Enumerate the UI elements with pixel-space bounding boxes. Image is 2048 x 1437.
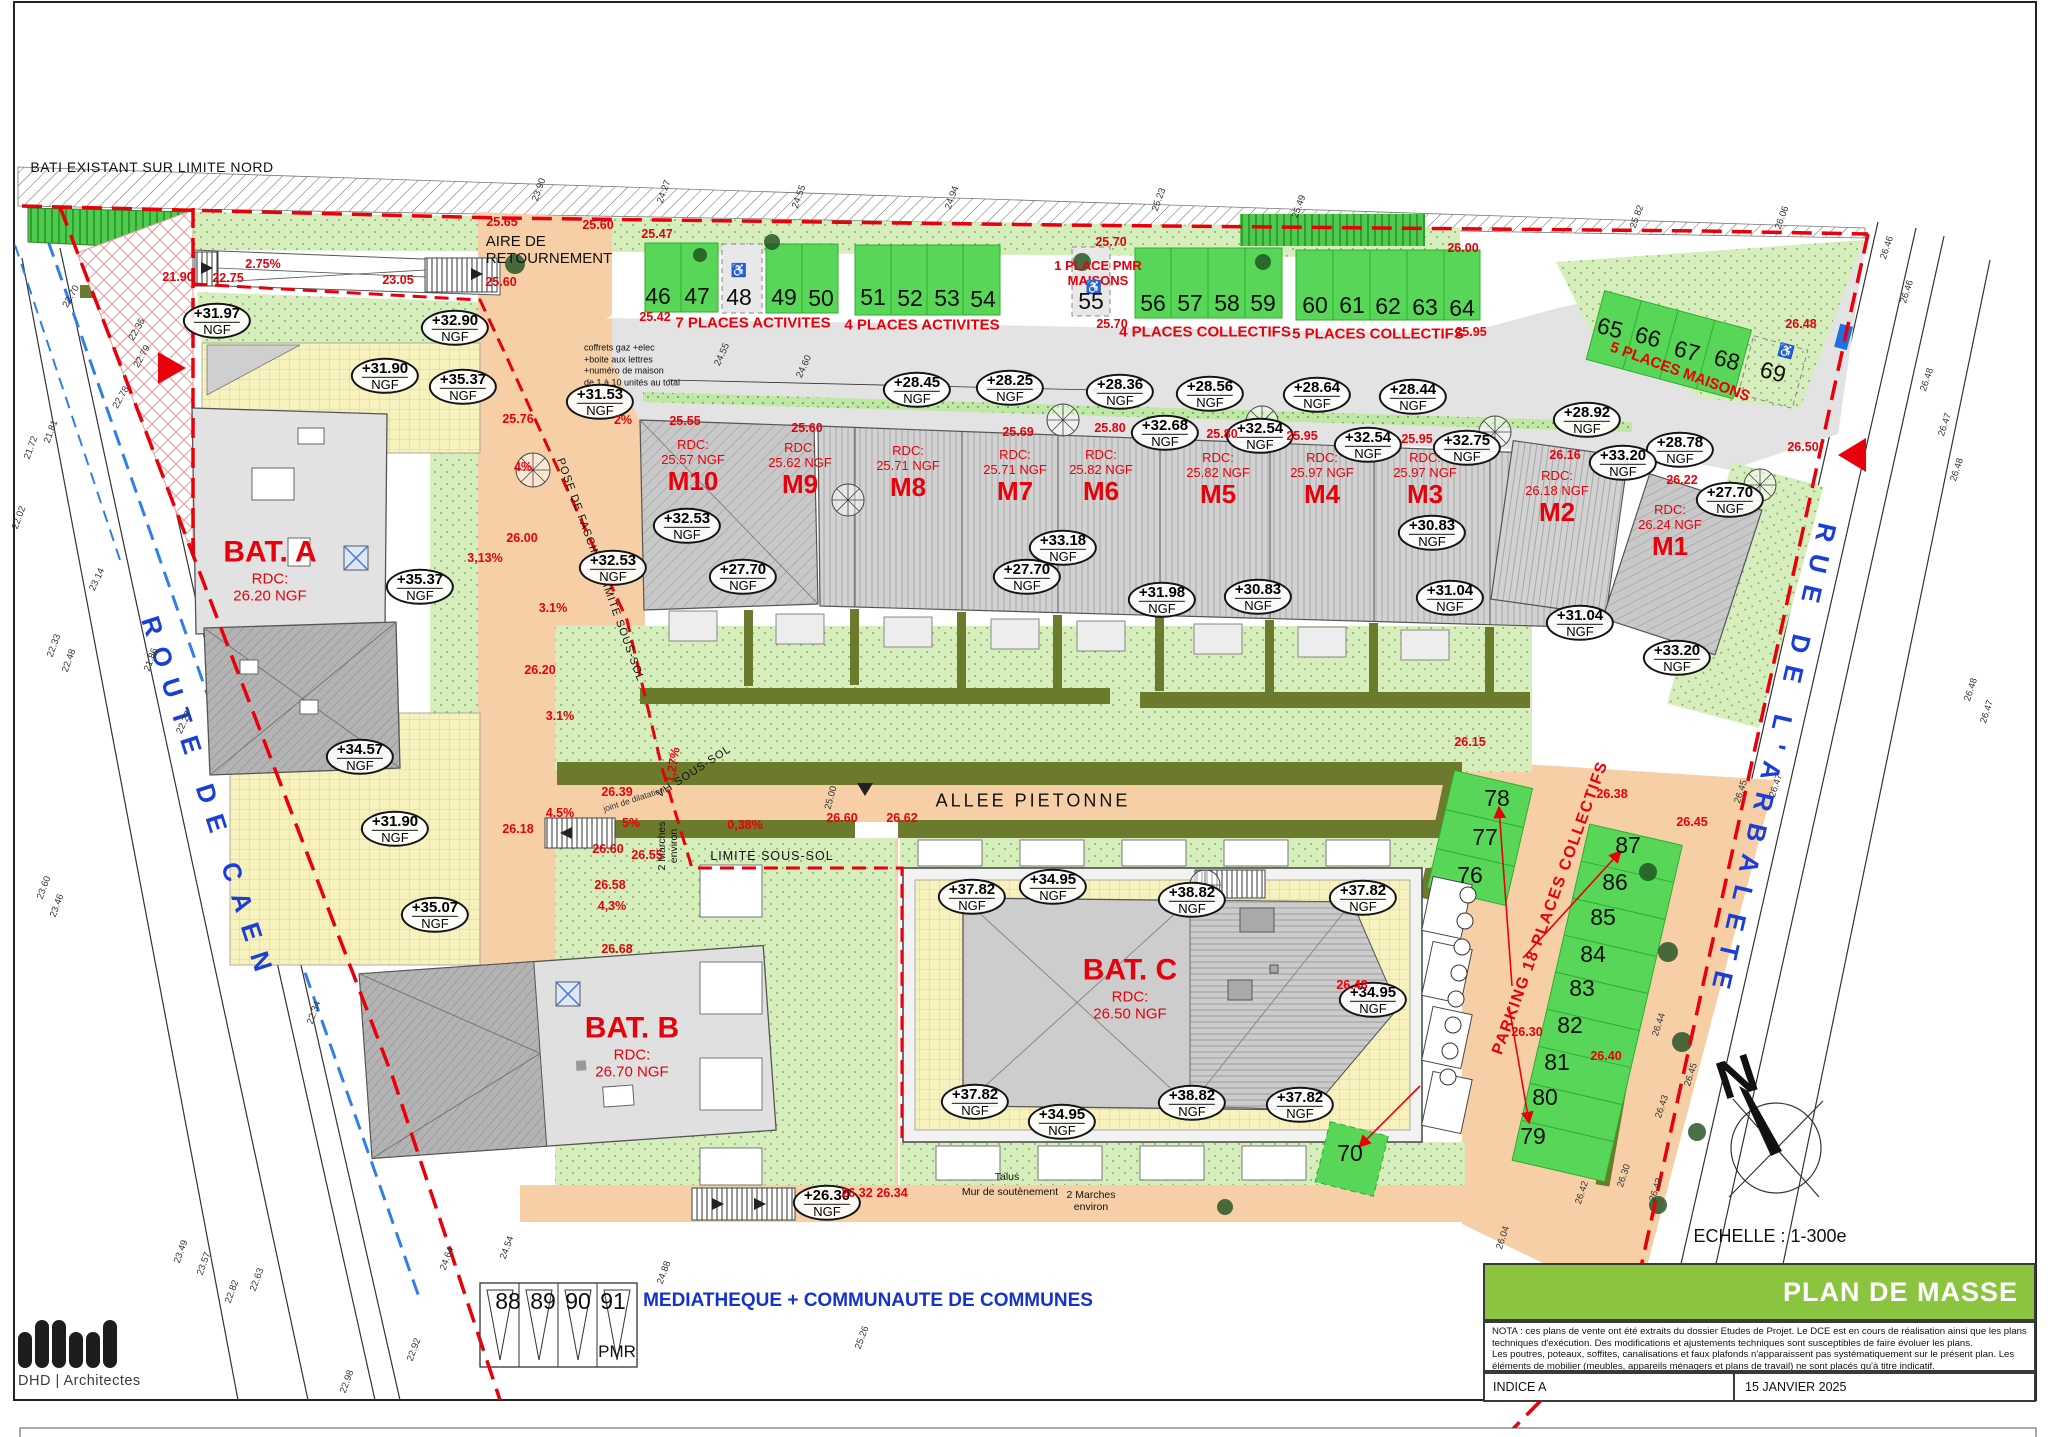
spot-elevation: 24.64	[439, 1246, 457, 1272]
map-label: 2 Marches environ	[656, 821, 680, 870]
parking-number: 60	[1302, 292, 1328, 318]
spot-elevation: 24.94	[944, 185, 962, 211]
elevation-marker: +34.57NGF	[326, 739, 394, 775]
red-annotation: 26.39	[601, 785, 632, 799]
spot-elevation: 23.49	[173, 1239, 191, 1265]
red-annotation: 26.30	[1511, 1025, 1542, 1039]
parking-number: 63	[1412, 294, 1438, 320]
spot-elevation: 26.46	[1879, 235, 1897, 261]
map-label: 5 PLACES MAISONS	[1608, 339, 1753, 406]
elevation-marker: +27.70NGF	[1696, 482, 1764, 518]
parking-number: 90	[565, 1288, 591, 1314]
red-annotation: 26.50	[1787, 440, 1818, 454]
spot-elevation: 25.82	[1629, 204, 1647, 230]
plan-overlay: BATI EXISTANT SUR LIMITE NORDAIRE DE RET…	[0, 0, 2048, 1437]
red-annotation: 25.60	[582, 218, 613, 232]
spot-elevation: 25.26	[854, 1325, 872, 1351]
parking-number: 65	[1594, 312, 1626, 344]
house-label: RDC:25.71 NGFM7	[983, 448, 1047, 506]
red-annotation: 25.47	[641, 227, 672, 241]
elevation-marker: +28.45NGF	[883, 372, 951, 408]
house-label: RDC:25.97 NGFM4	[1290, 451, 1354, 509]
spot-elevation: 21.86	[143, 647, 161, 673]
map-label: 1 PLACE PMR MAISONS	[1054, 259, 1141, 289]
red-annotation: 22.75	[212, 271, 243, 285]
parking-number: 83	[1569, 975, 1595, 1001]
elevation-marker: +26.30NGF	[793, 1185, 861, 1221]
parking-number: 87	[1615, 832, 1641, 858]
spot-elevation: 26.48	[1963, 677, 1981, 703]
spot-elevation: 26.46	[1899, 279, 1917, 305]
elevation-marker: +32.53NGF	[579, 550, 647, 586]
elevation-marker: +31.04NGF	[1416, 580, 1484, 616]
spot-elevation: 24.55	[713, 342, 733, 368]
red-annotation: 0,38%	[727, 818, 762, 832]
parking-number: 62	[1375, 293, 1401, 319]
parking-number: 51	[860, 284, 886, 310]
elevation-marker: +28.78NGF	[1646, 432, 1714, 468]
map-label: BATI EXISTANT SUR LIMITE NORD	[30, 159, 273, 175]
map-label: coffrets gaz +elec +boite aux lettres +n…	[584, 343, 680, 390]
red-annotation: 2.75%	[245, 257, 280, 271]
indice-cell: INDICE A	[1485, 1374, 1735, 1400]
spot-elevation: 26.45	[1683, 1062, 1701, 1088]
map-label: AIRE DE RETOURNEMENT	[486, 233, 612, 268]
red-annotation: 25.70	[1095, 235, 1126, 249]
elevation-marker: +27.70NGF	[709, 559, 777, 595]
parking-number: 79	[1520, 1123, 1546, 1149]
elevation-marker: +31.53NGF	[566, 384, 634, 420]
red-annotation: 25.95	[1455, 325, 1486, 339]
spot-elevation: 23.46	[49, 893, 67, 919]
spot-elevation: 22.70	[61, 284, 82, 310]
building-label: BAT. ARDC:26.20 NGF	[223, 536, 316, 605]
elevation-marker: +34.95NGF	[1028, 1104, 1096, 1140]
parking-number: 88	[495, 1288, 521, 1314]
map-label: 4 PLACES ACTIVITES	[844, 316, 999, 333]
parking-number: 49	[771, 284, 797, 310]
spot-elevation: 26.42	[1648, 1177, 1666, 1203]
spot-elevation: 25.49	[1291, 194, 1309, 220]
red-annotation: 26.45	[1676, 815, 1707, 829]
red-annotation: 26.00	[506, 531, 537, 545]
red-annotation: 26.22	[1666, 473, 1697, 487]
spot-elevation: 22.78	[111, 385, 132, 411]
red-annotation: 23.05	[382, 273, 413, 287]
spot-elevation: 21.72	[23, 435, 41, 461]
parking-number: 58	[1214, 290, 1240, 316]
spot-elevation: 22.33	[46, 633, 64, 659]
spot-elevation: 22.48	[61, 648, 79, 674]
red-annotation: 25.42	[639, 310, 670, 324]
date-cell: 15 JANVIER 2025	[1735, 1374, 2034, 1400]
spot-elevation: 24.60	[795, 354, 815, 380]
map-label: ALLEE PIETONNE	[936, 791, 1131, 812]
elevation-marker: +31.97NGF	[183, 303, 251, 339]
elevation-marker: +34.95NGF	[1019, 869, 1087, 905]
map-label: RUE DE L'ARBALETE	[1702, 520, 1841, 1004]
red-annotation: 4%	[514, 460, 532, 474]
plan-title: PLAN DE MASSE	[1783, 1277, 2018, 1308]
elevation-marker: +31.90NGF	[351, 358, 419, 394]
parking-number: 80	[1532, 1084, 1558, 1110]
parking-number: 82	[1557, 1012, 1583, 1038]
spot-elevation: 22.92	[406, 1337, 424, 1363]
red-annotation: 26.60	[592, 842, 623, 856]
parking-number: 77	[1472, 824, 1498, 850]
red-annotation: 25.95	[1286, 429, 1317, 443]
elevation-marker: +35.37NGF	[386, 569, 454, 605]
title-block-nota: NOTA : ces plans de vente ont été extrai…	[1483, 1321, 2036, 1372]
house-label: RDC:26.24 NGFM1	[1638, 503, 1702, 561]
elevation-marker: +28.44NGF	[1379, 379, 1447, 415]
spot-elevation: 22.98	[339, 1369, 357, 1395]
spot-elevation: 22.27	[175, 710, 195, 736]
parking-number: 52	[897, 285, 923, 311]
red-annotation: 26.00	[1447, 241, 1478, 255]
elevation-marker: +31.98NGF	[1128, 582, 1196, 618]
red-annotation: 26.20	[524, 663, 555, 677]
red-annotation: 26.48	[1336, 978, 1367, 992]
elevation-marker: +31.04NGF	[1546, 605, 1614, 641]
parking-number: 69	[1757, 356, 1789, 388]
spot-elevation: 21.81	[43, 419, 61, 445]
spot-elevation: 24.54	[499, 1235, 517, 1261]
red-annotation: 26.48	[1785, 317, 1816, 331]
red-annotation: 26.34	[876, 1186, 907, 1200]
red-annotation: 25.80	[1206, 427, 1237, 441]
elevation-marker: +32.53NGF	[653, 508, 721, 544]
architect-logo: DHD | Architectes	[18, 1320, 178, 1389]
red-annotation: 25.55	[669, 414, 700, 428]
spot-elevation: 25.23	[1151, 187, 1169, 213]
map-label: ROUTE DE CAEN	[134, 613, 281, 988]
title-block-banner: PLAN DE MASSE	[1483, 1263, 2036, 1321]
parking-number: 76	[1457, 862, 1483, 888]
map-label: ♿	[1086, 281, 1102, 296]
map-label: 4 PLACES COLLECTIFS	[1119, 323, 1291, 340]
map-label: Talus	[995, 1171, 1020, 1183]
spot-elevation: 26.30	[1616, 1163, 1634, 1189]
elevation-marker: +37.82NGF	[1266, 1087, 1334, 1123]
map-label: PARKING 18 PLACES COLLECTIFS	[1489, 759, 1613, 1058]
parking-number: 67	[1671, 335, 1703, 367]
map-label: LIMITE SOUS-SOL	[710, 849, 833, 863]
spot-elevation: 23.14	[88, 567, 108, 593]
parking-number: 86	[1602, 869, 1628, 895]
parking-number: 47	[684, 283, 710, 309]
parking-number: 64	[1449, 295, 1475, 321]
spot-elevation: 22.35	[127, 317, 148, 343]
map-label: VH SOUS-SOL	[654, 743, 733, 801]
elevation-marker: +37.82NGF	[938, 879, 1006, 915]
red-annotation: 26.32	[841, 1186, 872, 1200]
parking-number: 56	[1140, 290, 1166, 316]
map-label: 7 PLACES ACTIVITES	[675, 314, 830, 331]
elevation-marker: +28.64NGF	[1283, 377, 1351, 413]
building-label: BAT. CRDC:26.50 NGF	[1083, 954, 1177, 1023]
red-annotation: 2%	[614, 413, 632, 427]
spot-elevation: 24.55	[791, 184, 809, 210]
spot-elevation: 26.06	[1774, 205, 1792, 231]
red-annotation: 1,27%	[663, 746, 683, 783]
house-label: RDC:25.82 NGFM6	[1069, 448, 1133, 506]
elevation-marker: +28.25NGF	[976, 370, 1044, 406]
site-plan-canvas: BATI EXISTANT SUR LIMITE NORDAIRE DE RET…	[0, 0, 2048, 1437]
elevation-marker: +33.20NGF	[1643, 640, 1711, 676]
map-label: 5 PLACES COLLECTIFS	[1292, 325, 1464, 342]
spot-elevation: 26.47	[1768, 773, 1786, 799]
logo-bars-icon	[18, 1320, 178, 1368]
elevation-marker: +33.18NGF	[1029, 530, 1097, 566]
red-annotation: 25.95	[1401, 432, 1432, 446]
house-label: RDC:26.18 NGFM2	[1525, 469, 1589, 527]
red-annotation: 26.58	[594, 878, 625, 892]
elevation-marker: +28.36NGF	[1086, 374, 1154, 410]
elevation-marker: +30.83NGF	[1398, 515, 1466, 551]
red-annotation: 3,13%	[467, 551, 502, 565]
spot-elevation: 22.63	[249, 1267, 267, 1293]
parking-number: 68	[1711, 344, 1743, 376]
house-label: RDC:25.62 NGFM9	[768, 441, 832, 499]
red-annotation: 25.70	[1096, 317, 1127, 331]
elevation-marker: +32.54NGF	[1226, 418, 1294, 454]
spot-elevation: 23.90	[531, 177, 549, 203]
elevation-marker: +31.90NGF	[361, 811, 429, 847]
map-label: Mur de soutènement	[962, 1186, 1058, 1198]
red-annotation: 25.65	[486, 215, 517, 229]
red-annotation: 26.60	[826, 811, 857, 825]
red-annotation: 3.1%	[546, 709, 575, 723]
nota-line-2: Les poutres, poteaux, soffites, canalisa…	[1492, 1349, 2027, 1372]
parking-number: 91	[600, 1288, 626, 1314]
map-label: ♿	[1776, 343, 1796, 362]
elevation-marker: +27.70NGF	[993, 559, 1061, 595]
elevation-marker: +33.20NGF	[1589, 445, 1657, 481]
parking-number: 84	[1580, 941, 1606, 967]
red-annotation: 25.69	[1002, 425, 1033, 439]
house-label: RDC:25.57 NGFM10	[661, 438, 725, 496]
spot-elevation: 26.45	[1733, 779, 1751, 805]
spot-elevation: 25.00	[824, 785, 841, 811]
map-label: 2 Marches environ	[1066, 1189, 1115, 1213]
elevation-marker: +38.82NGF	[1158, 1085, 1226, 1121]
parking-number: 85	[1590, 904, 1616, 930]
elevation-marker: +35.07NGF	[401, 897, 469, 933]
parking-number: 46	[645, 283, 671, 309]
elevation-marker: +34.95NGF	[1339, 982, 1407, 1018]
red-annotation: 4.5%	[546, 806, 575, 820]
house-label: RDC:25.82 NGFM5	[1186, 451, 1250, 509]
red-annotation: 25.60	[791, 421, 822, 435]
red-annotation: 21.90	[162, 270, 193, 284]
spot-elevation: 26.47	[1937, 412, 1955, 438]
parking-number: 54	[970, 286, 996, 312]
parking-number: 89	[530, 1288, 556, 1314]
spot-elevation: 24.27	[656, 179, 674, 205]
spot-elevation: 26.48	[1949, 457, 1967, 483]
spot-elevation: 24.88	[656, 1260, 674, 1286]
parking-number: 61	[1339, 292, 1365, 318]
parking-number: 53	[934, 285, 960, 311]
elevation-marker: +37.82NGF	[1329, 880, 1397, 916]
house-label: RDC:25.71 NGFM8	[876, 444, 940, 502]
elevation-marker: +35.37NGF	[429, 369, 497, 405]
red-annotation: 3.1%	[539, 601, 568, 615]
parking-number: 59	[1250, 290, 1276, 316]
elevation-marker: +32.54NGF	[1334, 427, 1402, 463]
red-annotation: 26.38	[1596, 787, 1627, 801]
parking-number: 57	[1177, 290, 1203, 316]
spot-elevation: 26.42	[1574, 1180, 1592, 1206]
elevation-marker: +28.56NGF	[1176, 376, 1244, 412]
red-annotation: 25.60	[485, 275, 516, 289]
elevation-marker: +28.92NGF	[1553, 402, 1621, 438]
spot-elevation: 23.57	[196, 1251, 214, 1277]
red-annotation: 26.62	[886, 811, 917, 825]
red-annotation: 25.80	[1094, 421, 1125, 435]
elevation-marker: +30.83NGF	[1224, 579, 1292, 615]
parking-number: 78	[1484, 785, 1510, 811]
red-annotation: 26.55	[631, 848, 662, 862]
red-annotation: 26.68	[601, 942, 632, 956]
red-annotation: 4,3%	[598, 899, 627, 913]
logo-caption: DHD | Architectes	[18, 1373, 178, 1389]
spot-elevation: 26.44	[1651, 1012, 1669, 1038]
parking-number: 50	[808, 285, 834, 311]
title-block-row: INDICE A 15 JANVIER 2025	[1483, 1372, 2036, 1402]
red-annotation: 26.18	[502, 822, 533, 836]
nota-line-1: NOTA : ces plans de vente ont été extrai…	[1492, 1326, 2027, 1349]
parking-number: 48	[726, 284, 752, 310]
elevation-marker: +32.68NGF	[1131, 415, 1199, 451]
elevation-marker: +32.90NGF	[421, 310, 489, 346]
map-label: joint de dilatation	[602, 785, 666, 814]
map-label: ♿	[731, 264, 747, 279]
spot-elevation: 23.60	[36, 875, 54, 901]
spot-elevation: 22.34	[306, 1000, 324, 1026]
spot-elevation: 22.82	[224, 1279, 242, 1305]
house-label: RDC:25.97 NGFM3	[1393, 451, 1457, 509]
elevation-marker: +37.82NGF	[941, 1084, 1009, 1120]
spot-elevation: 26.47	[1979, 699, 1997, 725]
red-annotation: 25.76	[502, 412, 533, 426]
spot-elevation: 22.79	[132, 344, 153, 370]
elevation-marker: +32.75NGF	[1433, 430, 1501, 466]
red-annotation: 26.15	[1454, 735, 1485, 749]
spot-elevation: 26.43	[1654, 1094, 1672, 1120]
building-label: BAT. BRDC:26.70 NGF	[585, 1012, 679, 1081]
spot-elevation: 26.48	[1919, 367, 1937, 393]
elevation-marker: +38.82NGF	[1158, 882, 1226, 918]
scale-label: ECHELLE : 1-300e	[1660, 1226, 1880, 1247]
parking-number: 55	[1078, 288, 1104, 314]
red-annotation: 5%	[622, 816, 640, 830]
map-label: MEDIATHEQUE + COMMUNAUTE DE COMMUNES	[643, 1290, 1093, 1312]
parking-number: 66	[1632, 321, 1664, 353]
spot-elevation: 22.02	[11, 505, 29, 531]
spot-elevation: 26.04	[1495, 1225, 1513, 1251]
red-annotation: 26.16	[1549, 448, 1580, 462]
map-label: PMR	[598, 1342, 636, 1362]
parking-number: 81	[1544, 1049, 1570, 1075]
red-annotation: 26.40	[1590, 1049, 1621, 1063]
parking-number: 70	[1337, 1140, 1363, 1166]
map-label: POSE DE FASCINES LIMITE SOUS-SOL	[554, 457, 647, 684]
